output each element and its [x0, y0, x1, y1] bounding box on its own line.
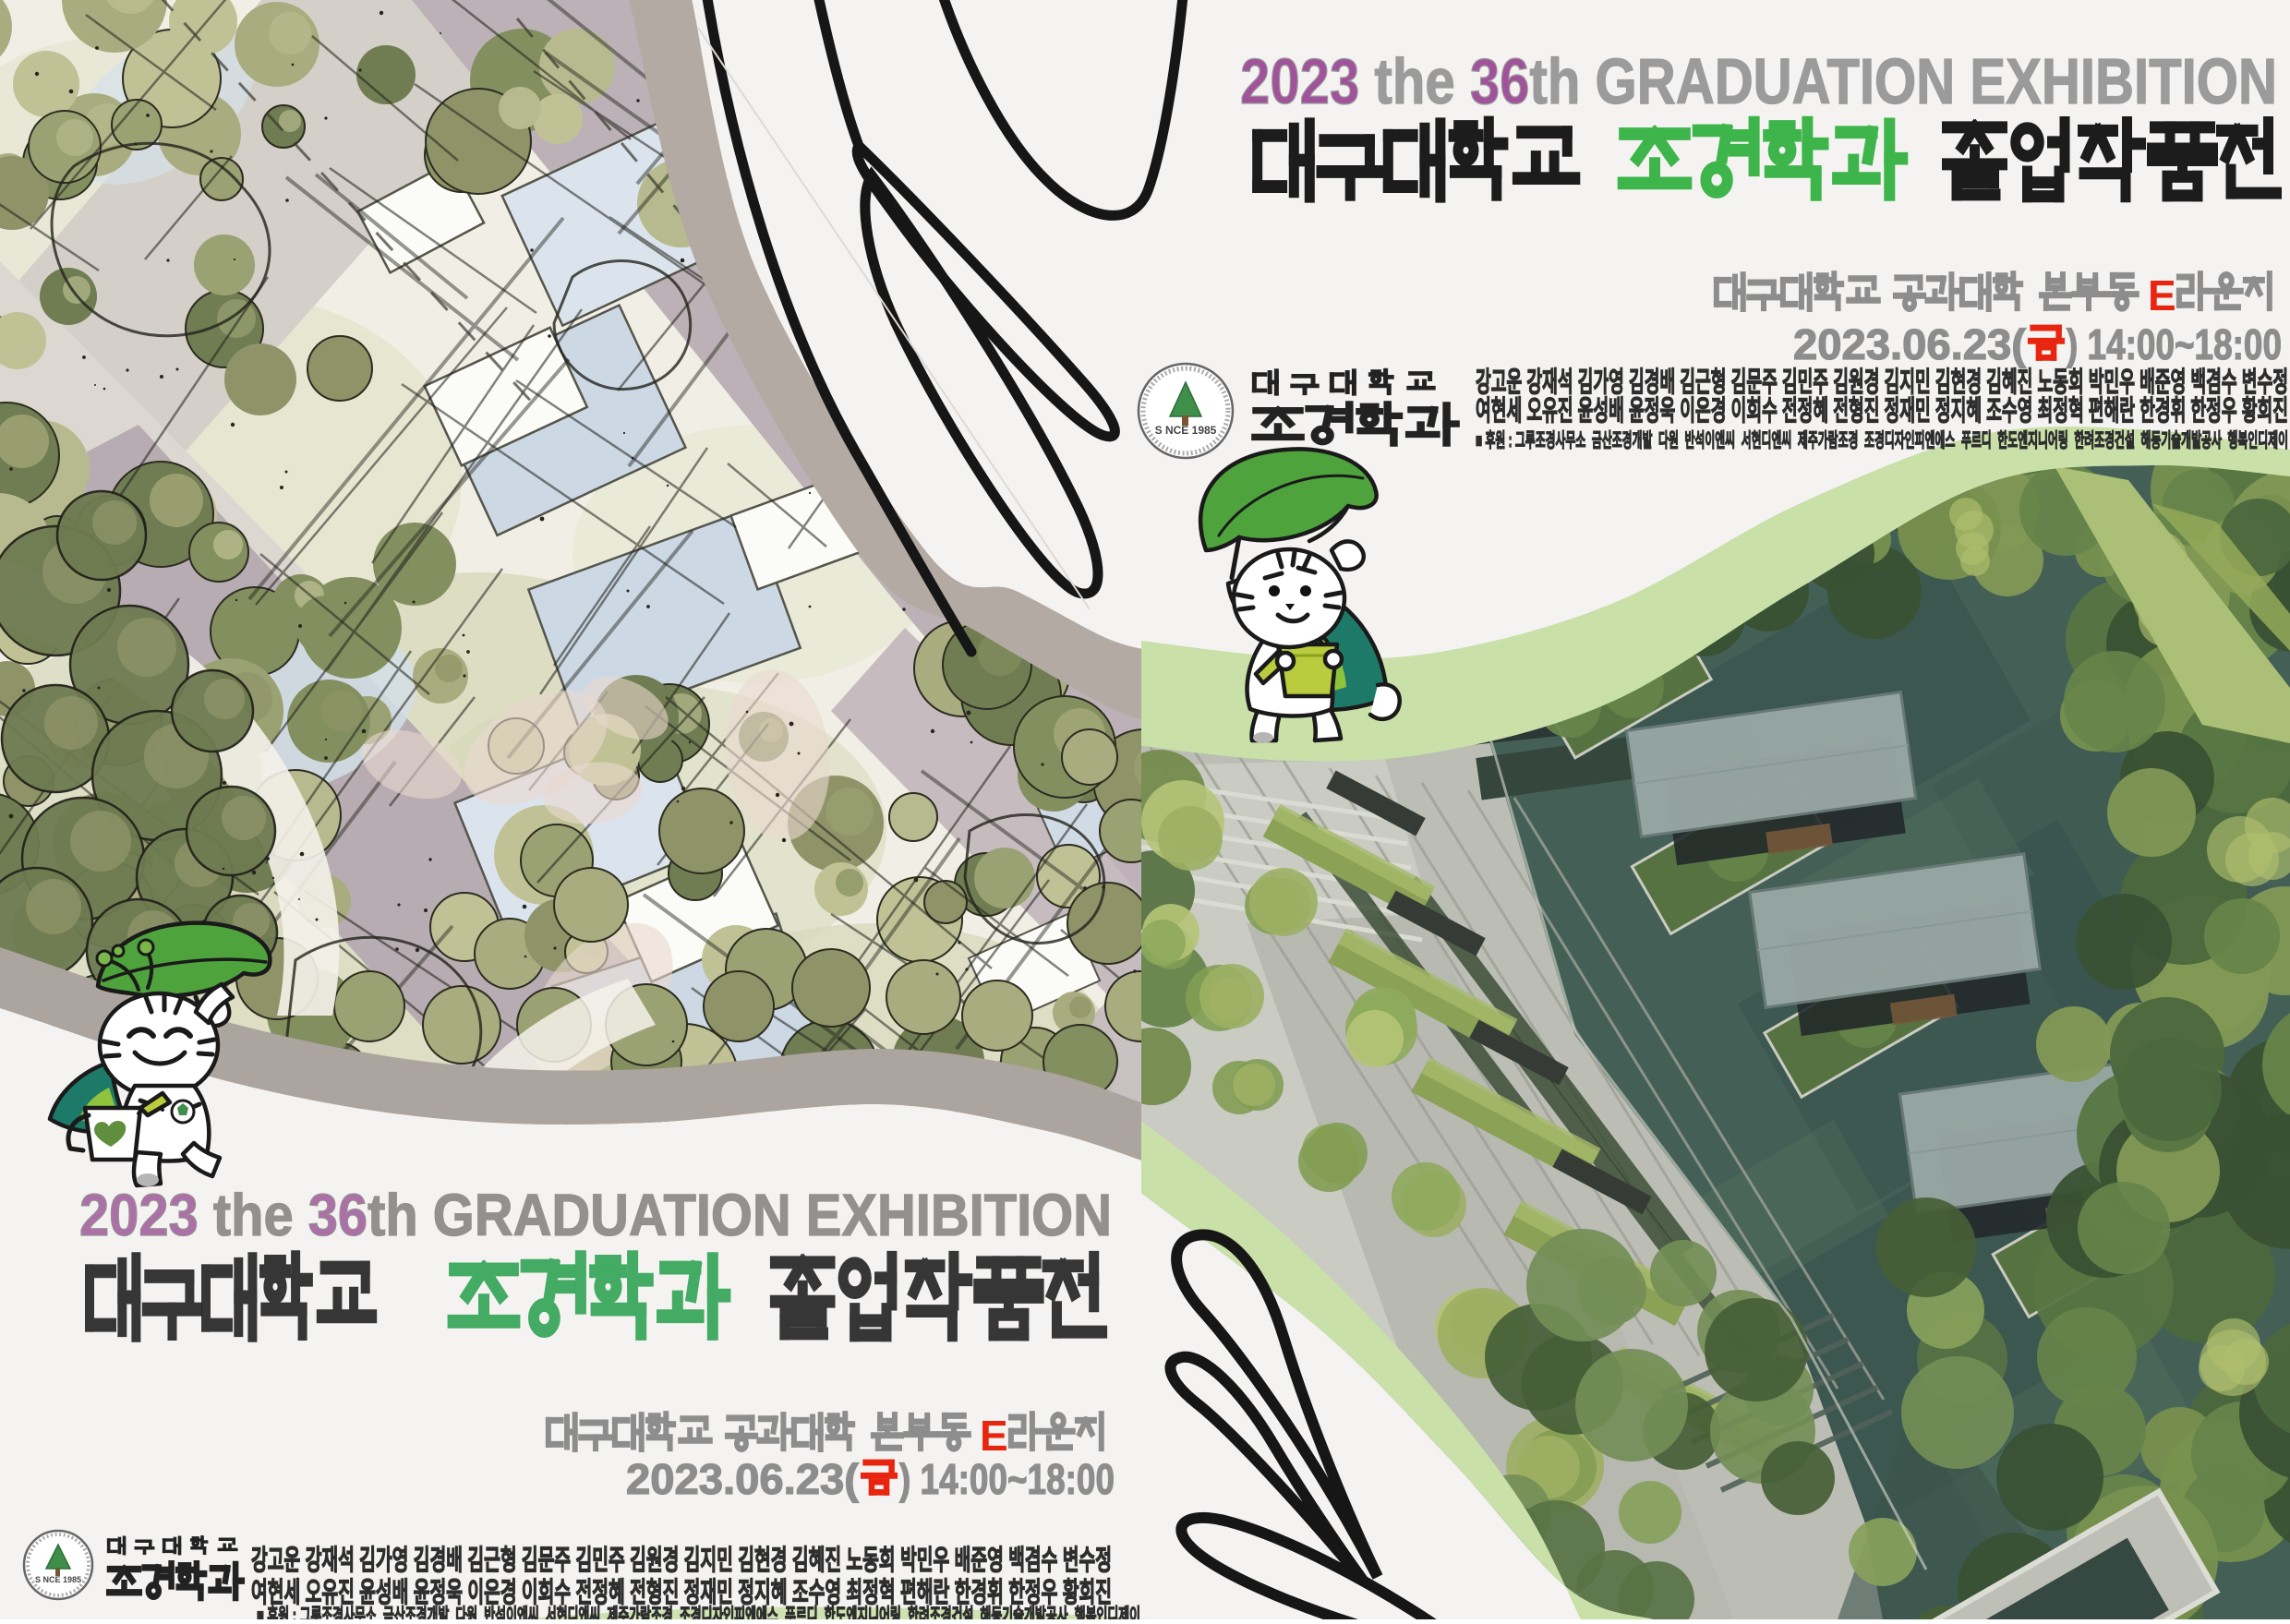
- svg-text:) 14:00~18:00: ) 14:00~18:00: [899, 1455, 1115, 1503]
- svg-text:■ 후원 : 그루조경사무소 금산조경개발 다원 반석: ■ 후원 : 그루조경사무소 금산조경개발 다원 반석이앤씨 서현디앤씨 제주가…: [1476, 429, 2288, 451]
- svg-text:E: E: [980, 1412, 1008, 1460]
- svg-text:강고운 강재석 김가영 김경배 김근형 김문주 김민주 김원: 강고운 강재석 김가영 김경배 김근형 김문주 김민주 김원경 김지민 김현경 …: [251, 1546, 1112, 1576]
- svg-text:여현세 오유진 윤성배 윤정욱 이은경 이희수 전정혜 전형: 여현세 오유진 윤성배 윤정욱 이은경 이희수 전정혜 전형진 정재민 정지혜 …: [251, 1578, 1112, 1608]
- svg-text:E: E: [2148, 271, 2176, 319]
- svg-text:2023.06.23(: 2023.06.23(: [1793, 320, 2027, 368]
- svg-text:여현세 오유진 윤성배 윤정욱 이은경 이희수 전정혜 전형: 여현세 오유진 윤성배 윤정욱 이은경 이희수 전정혜 전형진 정재민 정지혜 …: [1476, 396, 2288, 427]
- svg-text:2023 the 36th GRADUATION EXHIB: 2023 the 36th GRADUATION EXHIBITION: [79, 1182, 1112, 1248]
- svg-text:2023.06.23(: 2023.06.23(: [626, 1455, 860, 1503]
- svg-text:2023 the 36th GRADUATION EXHIB: 2023 the 36th GRADUATION EXHIBITION: [1240, 45, 2277, 117]
- svg-text:S NCE 1985: S NCE 1985: [35, 1575, 81, 1584]
- svg-text:■ 후원 : 그루조경사무소 금산조경개발 다원 반석: ■ 후원 : 그루조경사무소 금산조경개발 다원 반석이앤씨 서현디앤씨 제주가…: [257, 1605, 1140, 1619]
- svg-text:강고운 강재석 김가영 김경배 김근형 김문주 김민주 김원: 강고운 강재석 김가영 김경배 김근형 김문주 김민주 김원경 김지민 김현경 …: [1476, 367, 2288, 398]
- svg-text:S NCE 1985: S NCE 1985: [1155, 424, 1217, 437]
- svg-text:) 14:00~18:00: ) 14:00~18:00: [2067, 320, 2282, 368]
